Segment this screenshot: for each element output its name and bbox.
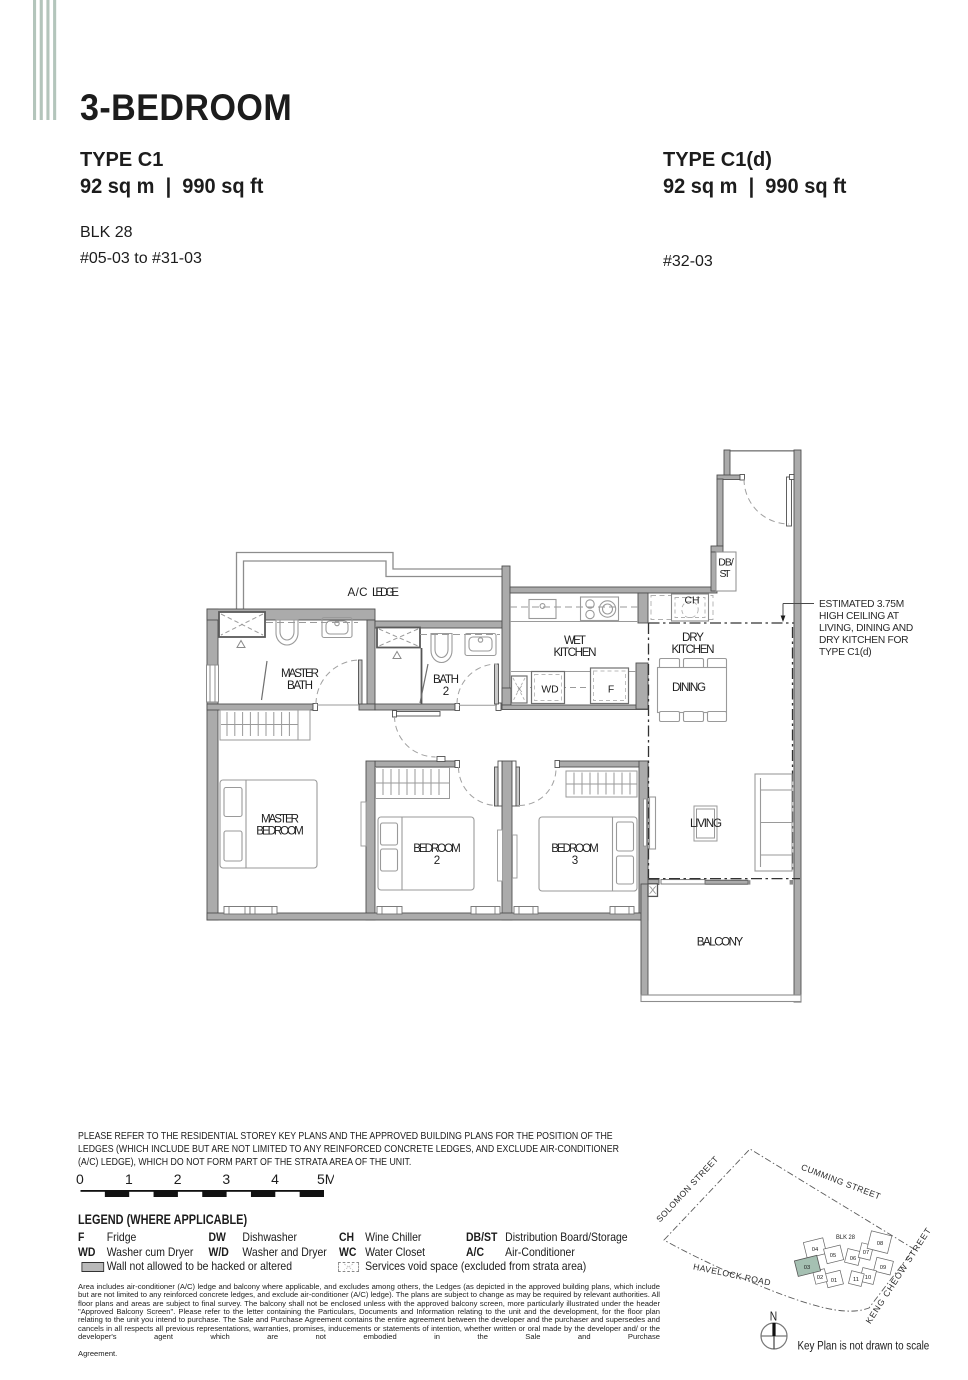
svg-text:10: 10 <box>865 1275 871 1281</box>
svg-text:LIVING, DINING AND: LIVING, DINING AND <box>819 623 913 634</box>
svg-text:09: 09 <box>880 1265 886 1271</box>
svg-text:02: 02 <box>817 1275 823 1281</box>
svg-text:KITCHEN: KITCHEN <box>672 643 715 656</box>
svg-text:A/C: A/C <box>348 586 368 599</box>
svg-text:TYPE C1(d): TYPE C1(d) <box>819 647 871 658</box>
svg-text:LEDGE: LEDGE <box>372 586 399 599</box>
svg-text:06: 06 <box>850 1256 856 1262</box>
svg-text:1: 1 <box>125 1171 133 1187</box>
svg-text:2: 2 <box>174 1171 182 1187</box>
svg-text:X: X <box>517 684 523 694</box>
svg-text:BATH: BATH <box>287 679 313 692</box>
svg-text:ESTIMATED 3.75M: ESTIMATED 3.75M <box>819 599 904 610</box>
svg-text:08: 08 <box>877 1241 883 1247</box>
svg-text:3: 3 <box>572 854 578 867</box>
svg-text:HIGH CEILING AT: HIGH CEILING AT <box>819 611 899 622</box>
svg-text:11: 11 <box>853 1277 859 1283</box>
svg-text:07: 07 <box>863 1250 869 1256</box>
svg-text:F: F <box>608 685 614 696</box>
svg-text:Key Plan is not drawn to scale: Key Plan is not drawn to scale <box>798 1340 930 1353</box>
svg-text:0: 0 <box>76 1171 84 1187</box>
svg-text:HAVELOCK ROAD: HAVELOCK ROAD <box>692 1261 772 1287</box>
svg-text:03: 03 <box>804 1265 810 1271</box>
svg-text:WD: WD <box>541 685 558 696</box>
svg-text:2: 2 <box>434 854 440 867</box>
svg-text:5M: 5M <box>317 1171 334 1187</box>
svg-text:BALCONY: BALCONY <box>697 936 744 949</box>
svg-text:3: 3 <box>222 1171 230 1187</box>
svg-text:X: X <box>650 885 656 895</box>
svg-text:4: 4 <box>271 1171 279 1187</box>
svg-text:05: 05 <box>830 1253 836 1259</box>
svg-text:01: 01 <box>831 1278 837 1284</box>
svg-text:DRY KITCHEN FOR: DRY KITCHEN FOR <box>819 635 908 646</box>
svg-text:LIVING: LIVING <box>690 817 722 830</box>
svg-text:BLK 28: BLK 28 <box>836 1234 855 1241</box>
svg-text:2: 2 <box>443 685 449 698</box>
svg-text:CUMMING STREET: CUMMING STREET <box>800 1162 883 1202</box>
svg-text:BEDROOM: BEDROOM <box>256 825 304 838</box>
svg-text:04: 04 <box>812 1247 819 1253</box>
svg-text:DINING: DINING <box>672 681 706 694</box>
svg-text:KITCHEN: KITCHEN <box>554 646 597 659</box>
svg-text:DB/: DB/ <box>718 558 734 569</box>
svg-text:SOLOMON STREET: SOLOMON STREET <box>654 1154 721 1224</box>
svg-text:N: N <box>770 1308 777 1324</box>
svg-text:CH: CH <box>685 596 700 607</box>
svg-text:ST: ST <box>720 569 732 580</box>
